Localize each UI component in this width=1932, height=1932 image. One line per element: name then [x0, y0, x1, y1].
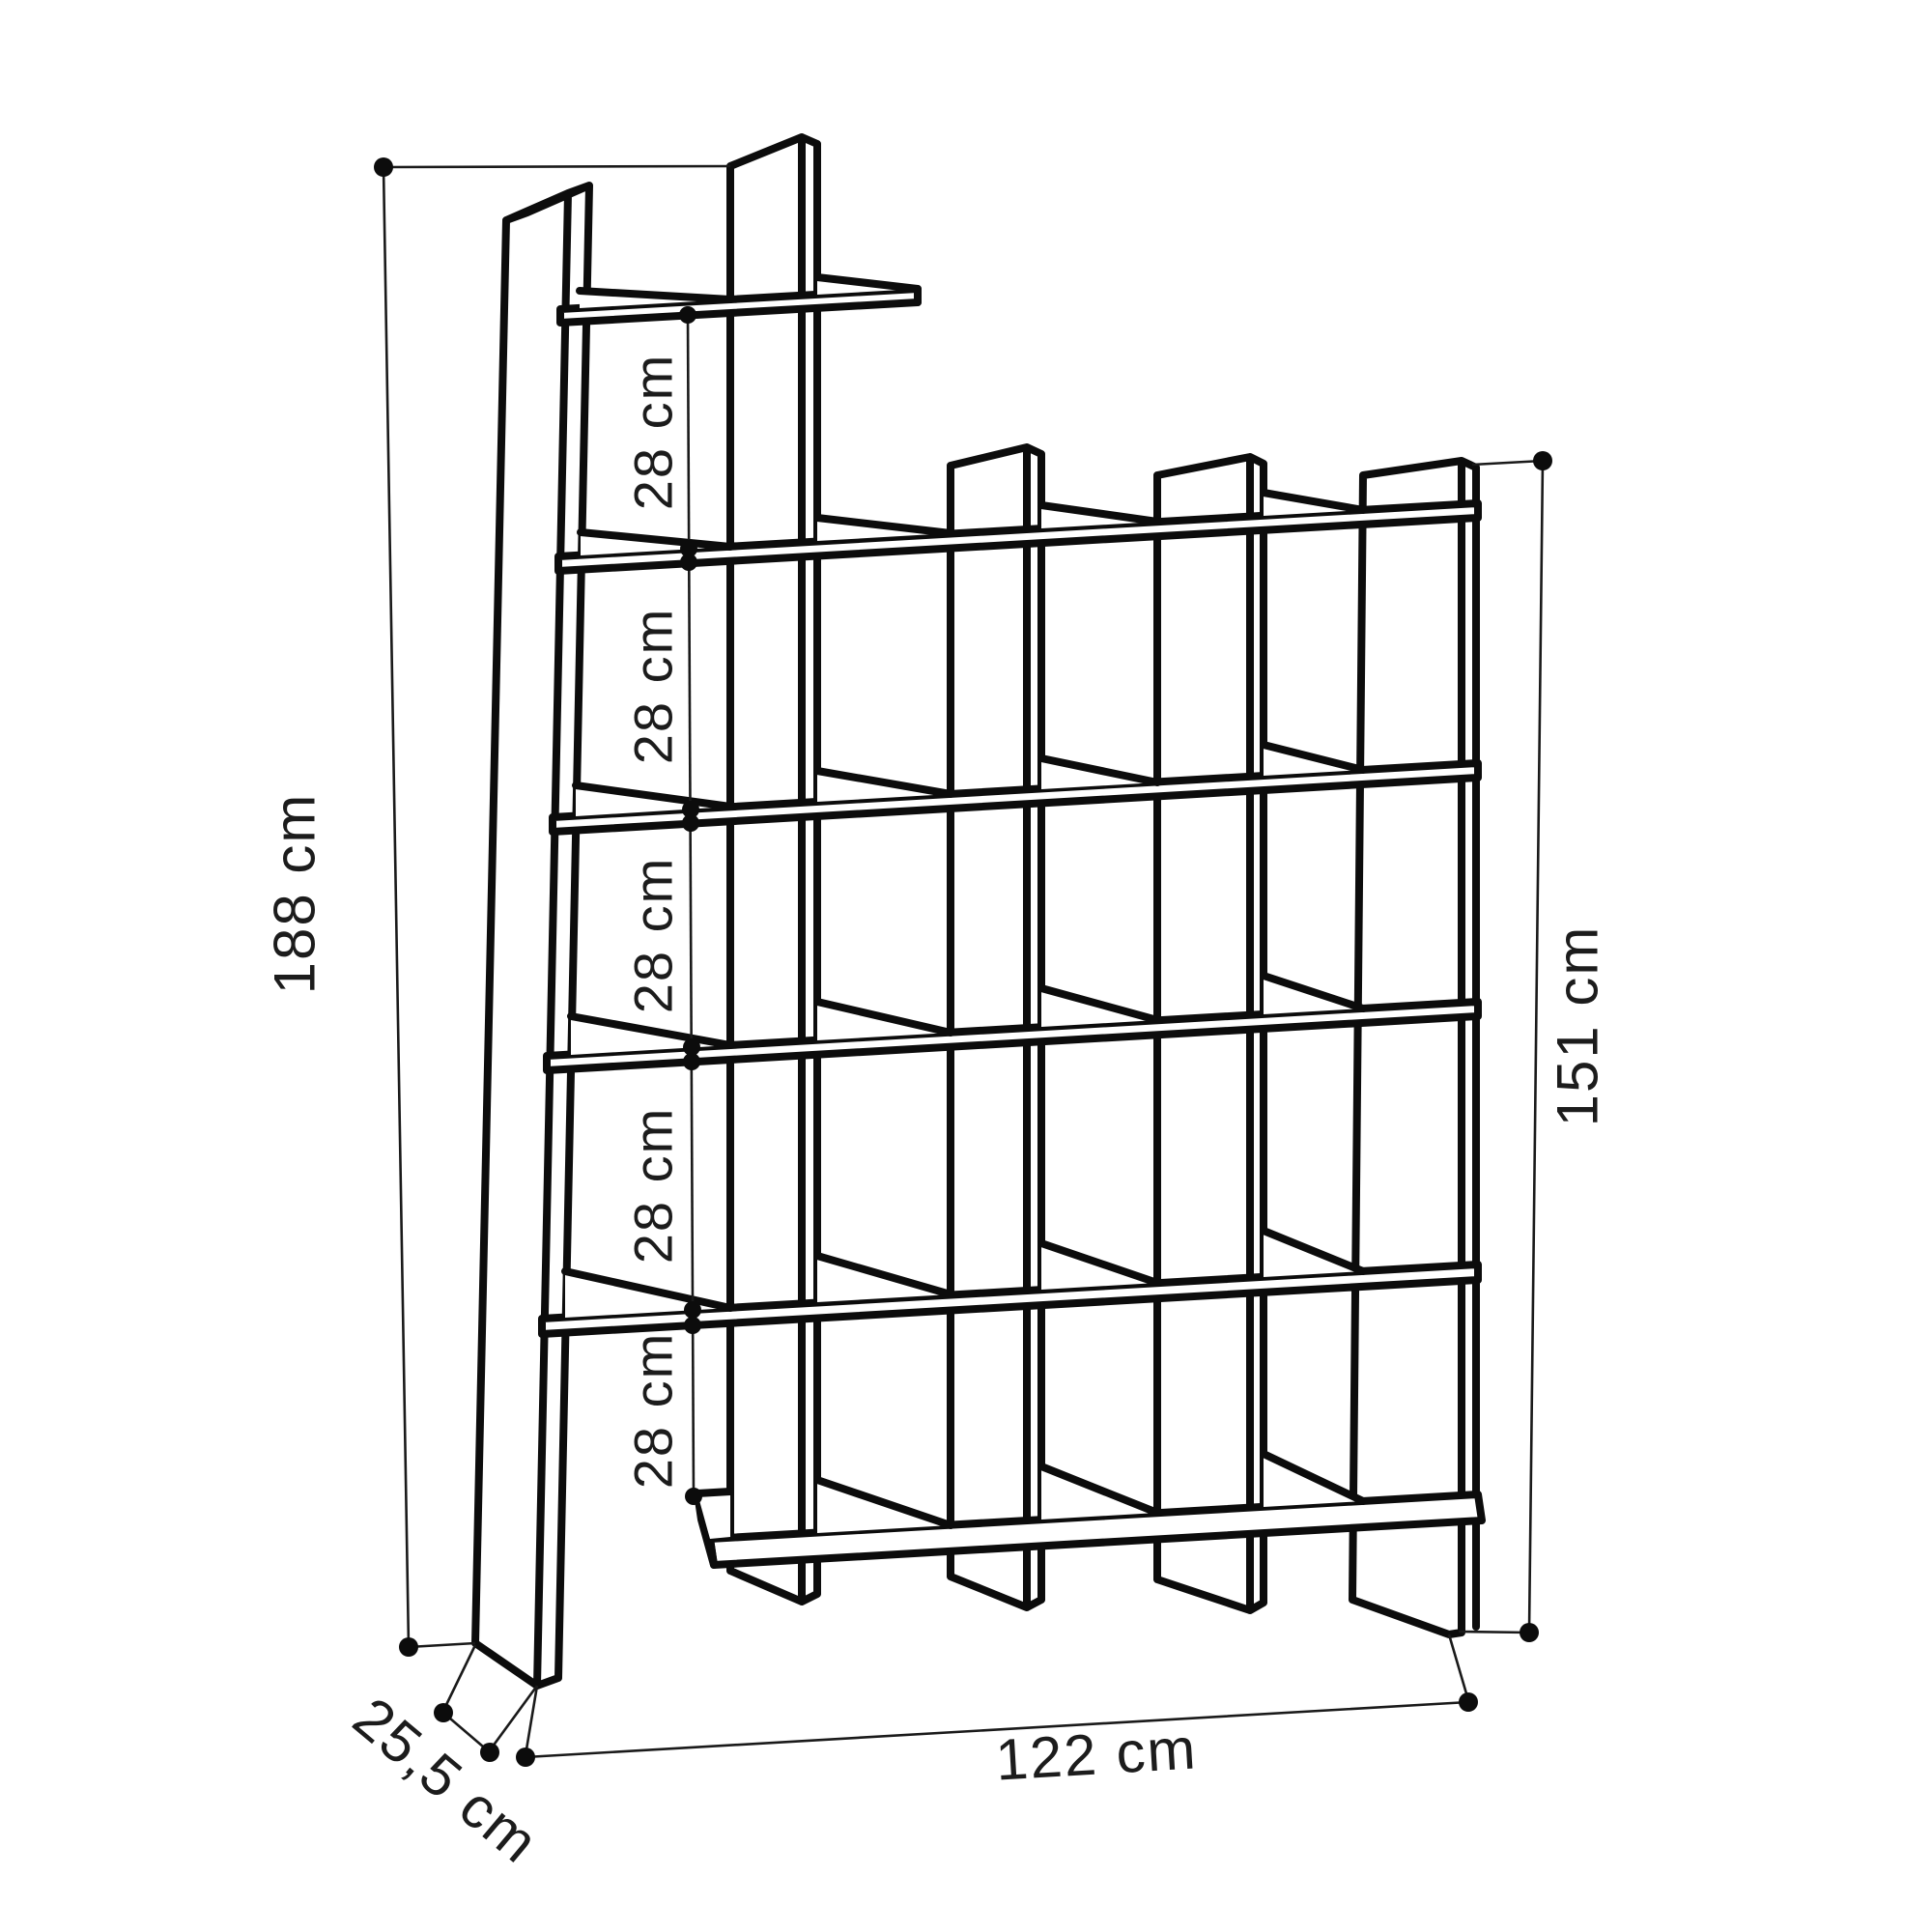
left-side-panel-edges [475, 185, 589, 1686]
dim-label-width: 122 cm [994, 1716, 1199, 1792]
center-left-divider-edges [730, 137, 817, 1602]
right-side-panel [1352, 461, 1476, 1634]
bookcase-dimension-diagram-page: 188 cm 28 cm 28 cm 28 cm 28 cm 28 cm [0, 0, 1932, 1932]
dim-188-dot-bottom [399, 1637, 418, 1657]
dim-label-right-height: 151 cm [1546, 925, 1610, 1127]
dim-151-lines [1459, 461, 1543, 1633]
dim-151-dot-top [1533, 451, 1552, 470]
dim-188-dot-top [374, 157, 393, 177]
dim-label-gap-2: 28 cm [623, 608, 684, 765]
right-side-panel-edges [1352, 461, 1476, 1634]
dim-255-dot-top [434, 1703, 453, 1722]
dim-122-dot-left [516, 1747, 535, 1767]
dim-label-gap-5: 28 cm [623, 1332, 684, 1490]
dim-122-dot-right [1459, 1692, 1478, 1712]
dim-255-lines [443, 1645, 537, 1752]
dim-255-dot-bottom [480, 1743, 499, 1762]
bookcase-dimension-diagram: 188 cm 28 cm 28 cm 28 cm 28 cm 28 cm [0, 0, 1932, 1932]
top-shelf [560, 277, 918, 323]
dim-label-gap-1: 28 cm [623, 354, 684, 511]
dimension-width: 122 cm [516, 1634, 1478, 1793]
center-left-divider [730, 137, 817, 1602]
dimension-right-height: 151 cm [1459, 451, 1610, 1642]
dim-label-gap-4: 28 cm [623, 1107, 684, 1264]
left-side-panel [475, 185, 589, 1686]
dim-label-total-height: 188 cm [263, 793, 327, 995]
dim-label-gap-3: 28 cm [623, 857, 684, 1014]
dim-151-dot-bottom [1520, 1623, 1539, 1642]
